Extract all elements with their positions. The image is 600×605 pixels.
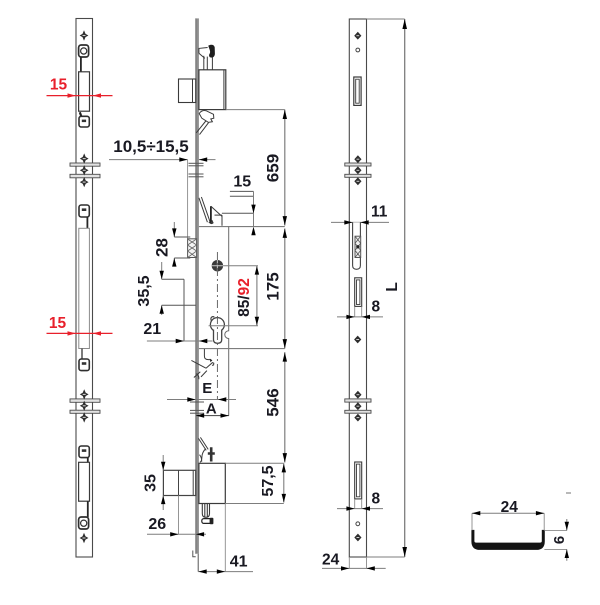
svg-text:15: 15: [49, 315, 67, 332]
svg-text:175: 175: [263, 272, 282, 300]
svg-text:8: 8: [371, 299, 380, 316]
svg-text:8: 8: [371, 491, 380, 508]
svg-text:41: 41: [230, 554, 248, 571]
svg-text:E: E: [202, 380, 212, 397]
svg-text:10,5÷15,5: 10,5÷15,5: [113, 137, 189, 156]
svg-text:24: 24: [501, 499, 519, 516]
svg-text:26: 26: [148, 516, 166, 533]
svg-text:L: L: [384, 282, 401, 291]
svg-text:85/92: 85/92: [235, 278, 252, 317]
svg-text:28: 28: [153, 238, 172, 257]
svg-text:546: 546: [264, 388, 283, 416]
svg-text:11: 11: [371, 204, 388, 221]
svg-text:24: 24: [322, 552, 340, 569]
svg-text:15: 15: [50, 77, 68, 94]
svg-text:15: 15: [233, 174, 251, 191]
svg-text:35,5: 35,5: [136, 275, 153, 306]
svg-text:35: 35: [143, 474, 160, 492]
svg-text:A: A: [206, 400, 217, 417]
svg-text:659: 659: [263, 154, 282, 182]
svg-text:21: 21: [143, 321, 161, 338]
svg-text:57,5: 57,5: [260, 465, 277, 496]
svg-text:6: 6: [551, 536, 568, 544]
